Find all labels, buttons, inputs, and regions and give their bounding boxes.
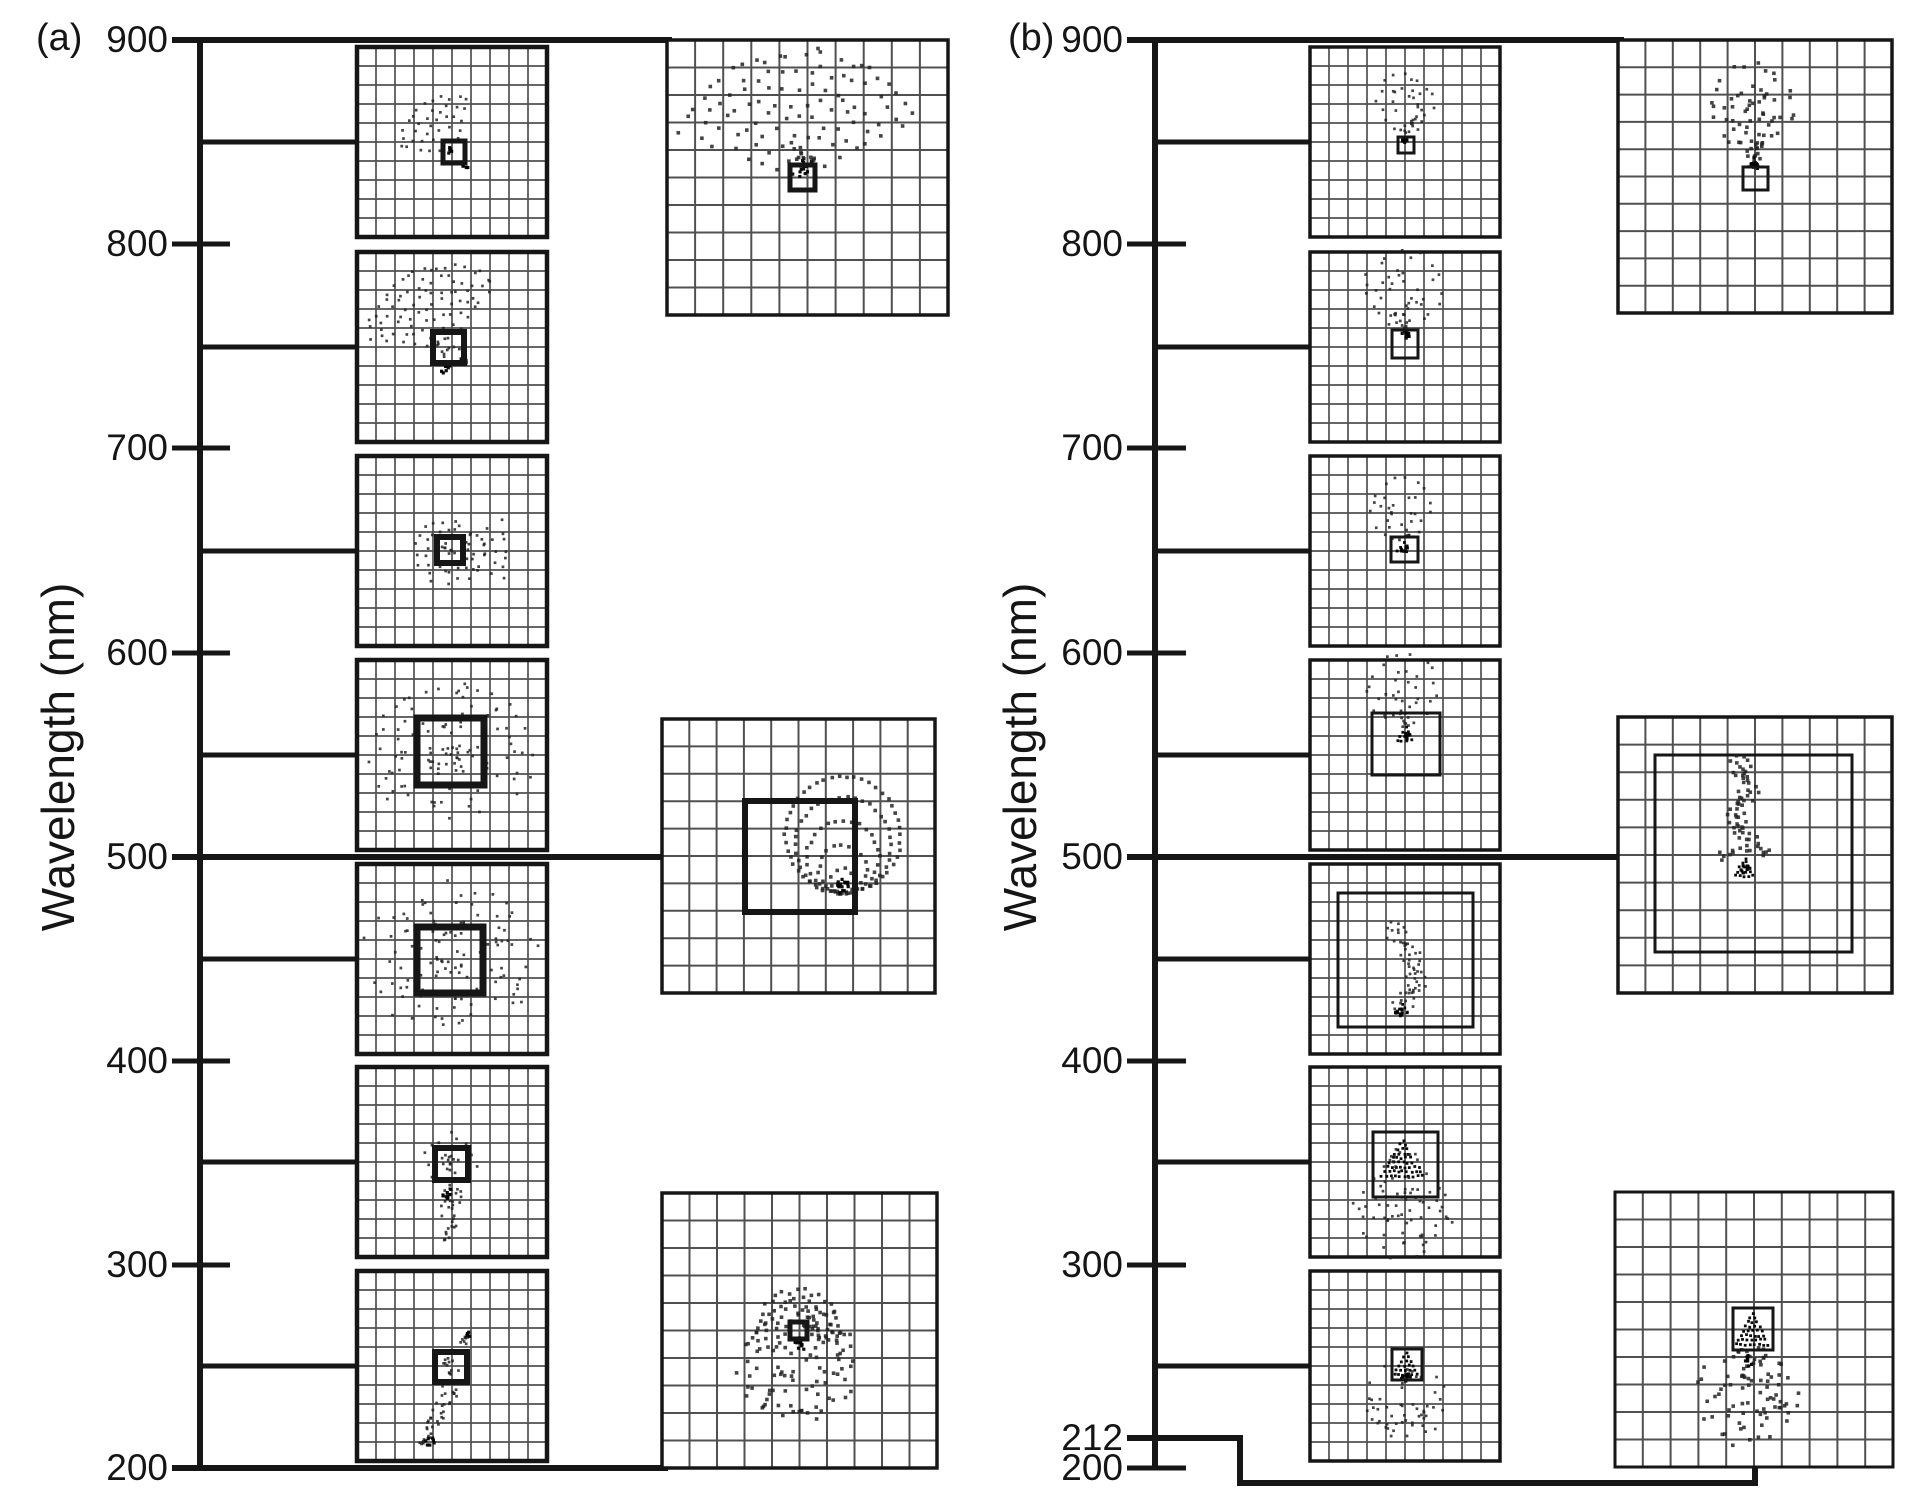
tick-label-a-900: 900 bbox=[40, 21, 168, 59]
zoom-b-500nm bbox=[1618, 717, 1892, 993]
subplot-a-850nm bbox=[357, 47, 547, 237]
panel-b bbox=[1127, 40, 1893, 1483]
tick-label-a-700: 700 bbox=[40, 429, 168, 467]
tick-label-b-500: 500 bbox=[995, 838, 1123, 876]
subplot-b-850nm bbox=[1310, 47, 1500, 237]
tick-label-b-300: 300 bbox=[995, 1246, 1123, 1284]
tick-label-a-800: 800 bbox=[40, 225, 168, 263]
subplot-a-650nm bbox=[357, 456, 547, 646]
subplot-connectors-b bbox=[1155, 142, 1315, 1366]
subplot-a-550nm bbox=[357, 660, 547, 850]
tick-label-b-400: 400 bbox=[995, 1042, 1123, 1080]
subplot-a-250nm bbox=[357, 1271, 547, 1461]
zoom-a-500nm bbox=[662, 719, 935, 993]
subplot-b-650nm bbox=[1310, 456, 1500, 646]
tick-label-a-600: 600 bbox=[40, 634, 168, 672]
subplot-a-450nm bbox=[357, 864, 547, 1054]
subplot-a-750nm bbox=[357, 252, 547, 442]
subplot-b-550nm bbox=[1310, 653, 1500, 850]
tick-label-a-300: 300 bbox=[40, 1246, 168, 1284]
subplot-a-350nm bbox=[357, 1067, 547, 1257]
tick-label-b-900: 900 bbox=[995, 21, 1123, 59]
tick-label-b-200: 200 bbox=[995, 1449, 1123, 1487]
zoom-a-200nm bbox=[662, 1193, 937, 1468]
subplot-b-350nm bbox=[1310, 1067, 1500, 1259]
zoom-b-212nm bbox=[1615, 1192, 1893, 1467]
subplot-b-450nm bbox=[1310, 864, 1500, 1054]
zoom-b-900nm bbox=[1618, 40, 1892, 313]
figure-canvas bbox=[0, 0, 1920, 1490]
subplot-b-250nm bbox=[1310, 1271, 1500, 1461]
zoom-a-900nm bbox=[667, 40, 948, 315]
subplot-b-750nm bbox=[1310, 249, 1500, 442]
tick-label-b-600: 600 bbox=[995, 634, 1123, 672]
tick-label-b-800: 800 bbox=[995, 225, 1123, 263]
tick-label-a-200: 200 bbox=[40, 1449, 168, 1487]
subplot-connectors-a bbox=[200, 142, 362, 1366]
panel-a bbox=[172, 40, 948, 1468]
figure: (a) (b) Wavelength (nm) Wavelength (nm) … bbox=[0, 0, 1920, 1490]
tick-label-b-700: 700 bbox=[995, 429, 1123, 467]
tick-label-a-400: 400 bbox=[40, 1042, 168, 1080]
tick-label-a-500: 500 bbox=[40, 838, 168, 876]
